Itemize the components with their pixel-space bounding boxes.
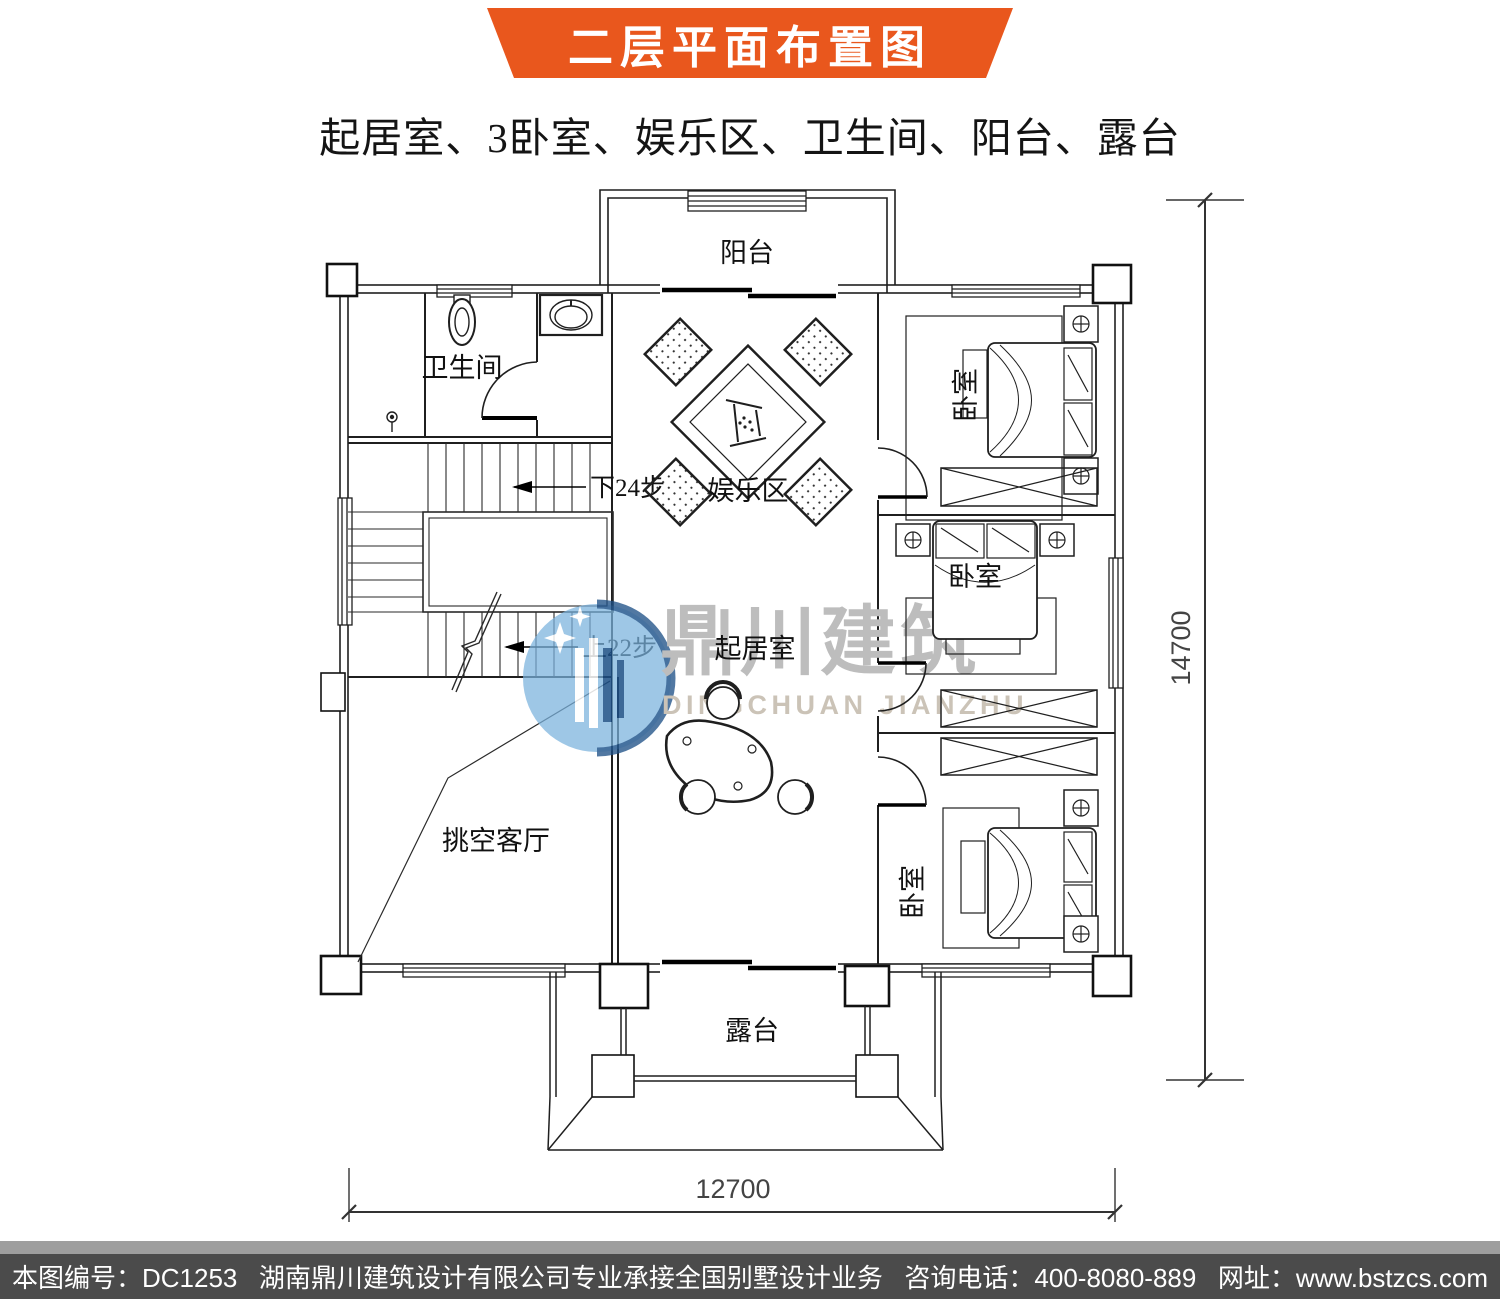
floor-plan-drawing: 下24步 上22步 鼎川建筑 DINGCHUAN JI [0,0,1500,1299]
living-room-label: 起居室 [715,634,796,664]
dimension-height-label: 14700 [1166,610,1196,685]
footer-website[interactable]: 网址：www.bstzcs.com [1218,1258,1488,1295]
bedroom-top-right-furniture [878,306,1098,520]
bedroom-top-right-label: 卧室 [951,368,981,422]
footer-bar: 本图编号：DC1253 湖南鼎川建筑设计有限公司专业承接全国别墅设计业务 咨询电… [0,1254,1500,1299]
dimension-width-label: 12700 [695,1174,770,1204]
footer-drawing-no: 本图编号：DC1253 [12,1258,237,1295]
balcony-label: 阳台 [720,238,774,268]
terrace-label: 露台 [725,1016,779,1046]
bedroom-bottom-right-label: 卧室 [898,865,928,919]
footer-divider-strip [0,1241,1500,1254]
living-void-label: 挑空客厅 [442,826,550,856]
watermark-logo [523,604,671,752]
watermark-cn: 鼎川建筑 [660,600,980,685]
bedroom-middle-right-label: 卧室 [948,562,1002,592]
bathroom-label: 卫生间 [422,353,503,383]
footer-company: 湖南鼎川建筑设计有限公司专业承接全国别墅设计业务 [259,1258,883,1295]
footer-phone: 咨询电话：400-8080-889 [904,1258,1196,1295]
entertainment-label: 娱乐区 [708,476,789,506]
